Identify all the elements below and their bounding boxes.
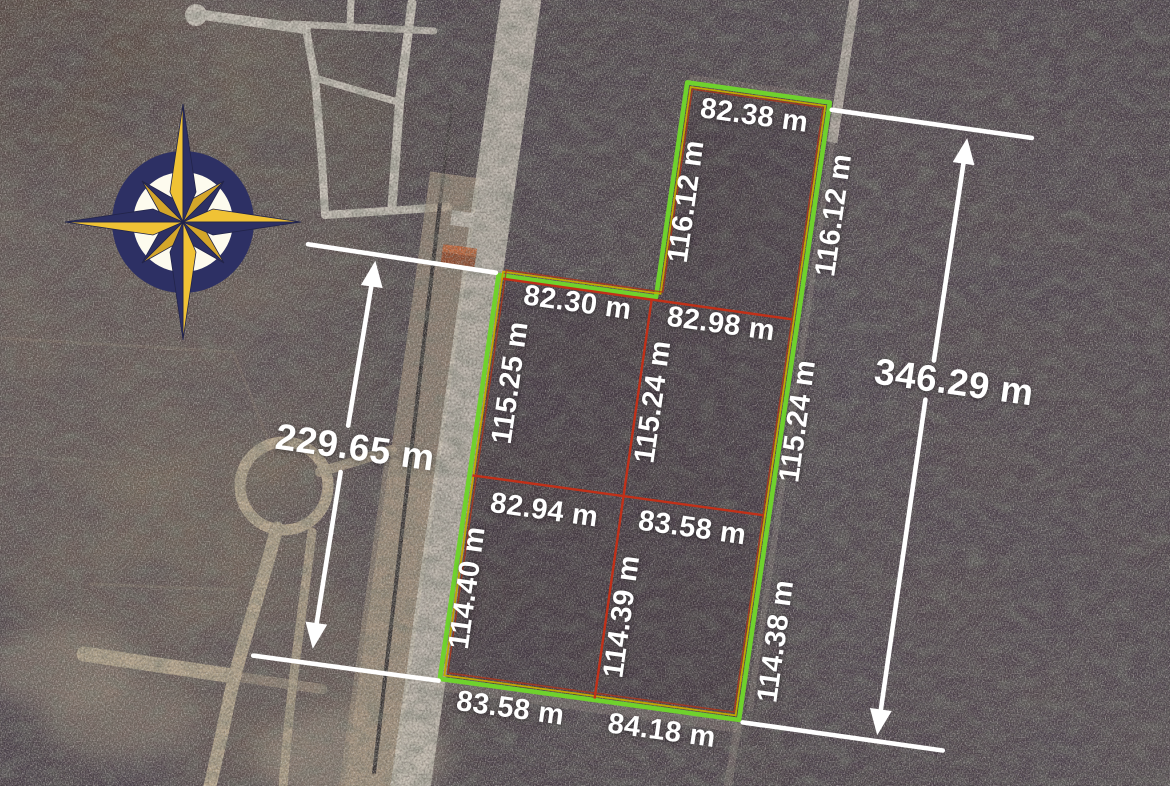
compass-rose-icon: [53, 92, 313, 352]
compass-star-cardinal: [65, 104, 301, 340]
land-survey-listing-image: 82.38 m 116.12 m 116.12 m 82.30 m 82.98 …: [0, 0, 1170, 786]
